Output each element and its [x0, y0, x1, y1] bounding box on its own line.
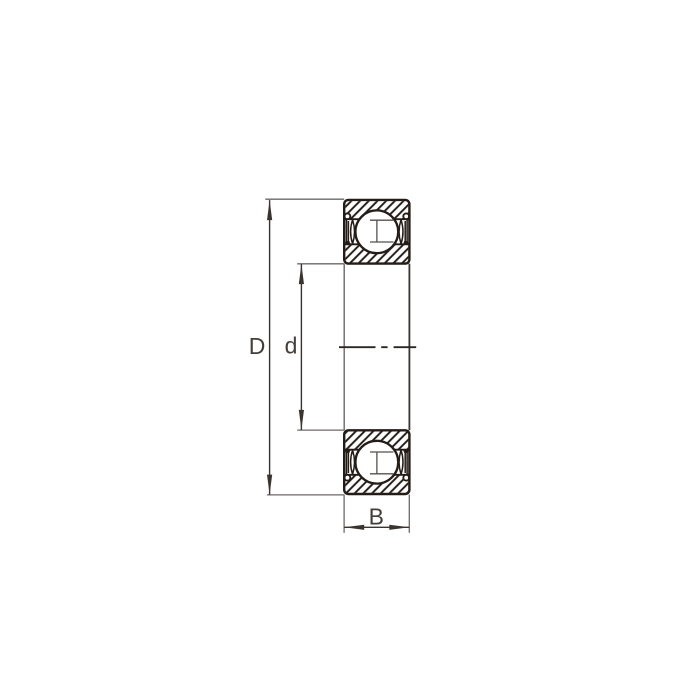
svg-text:D: D [249, 333, 266, 359]
svg-text:B: B [369, 504, 384, 530]
svg-text:d: d [285, 333, 298, 359]
